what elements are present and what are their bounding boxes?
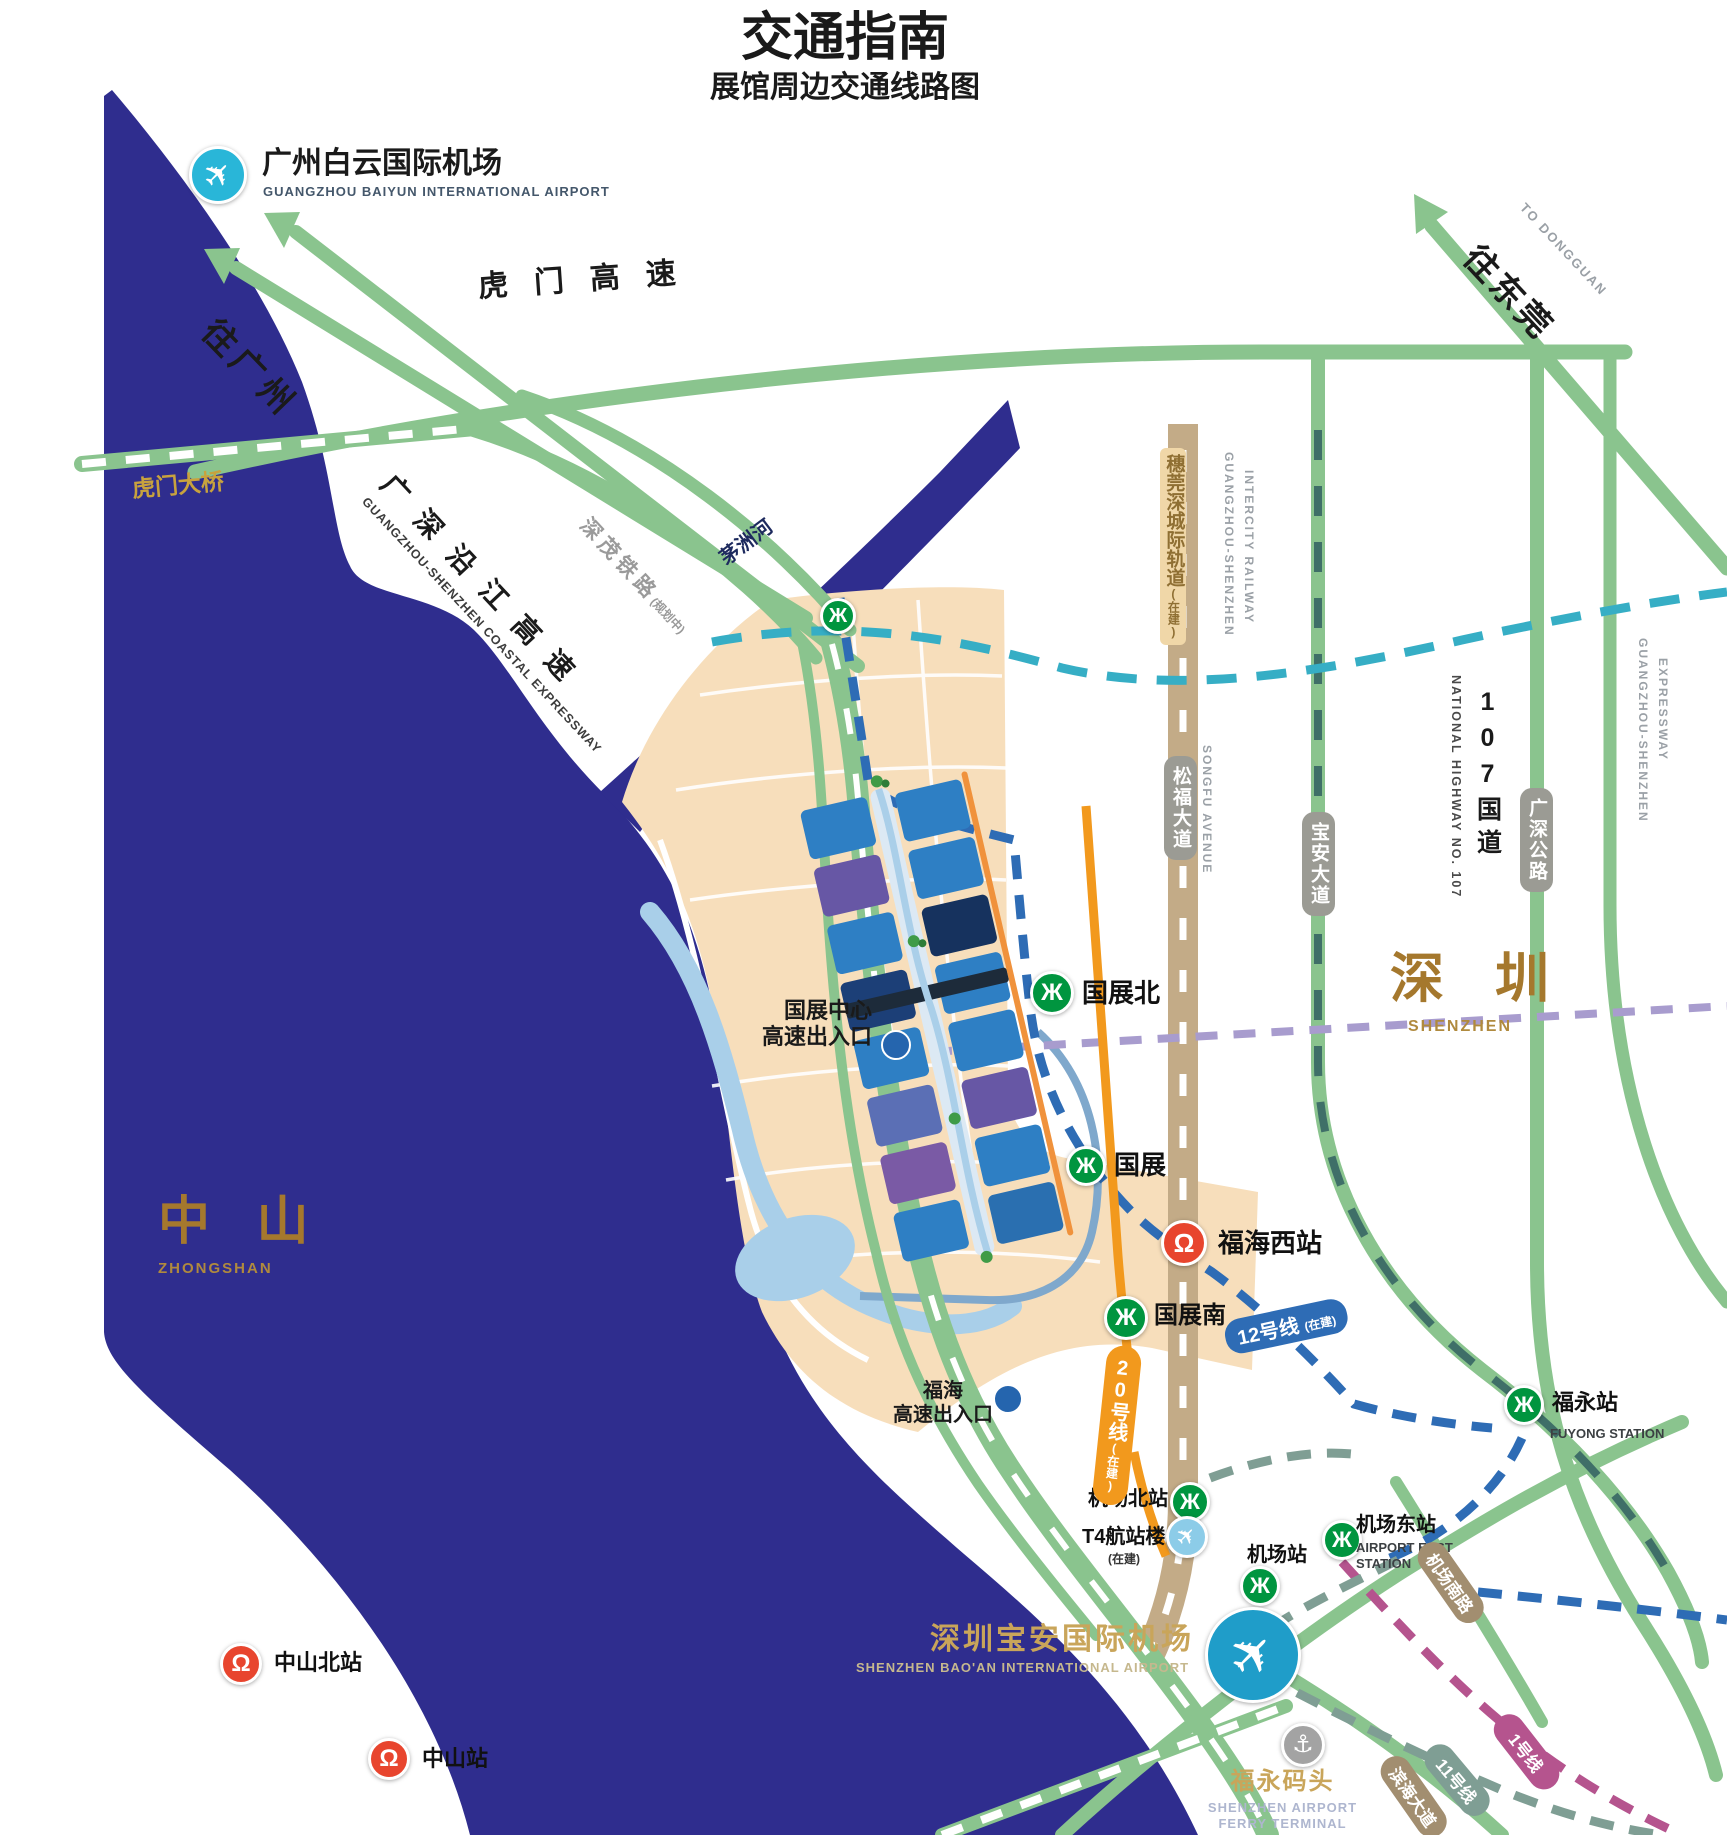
metro-icon-guozhan: Ж: [1066, 1146, 1106, 1186]
metro-icon-airport: Ж: [1240, 1566, 1280, 1606]
page-subtitle: 展馆周边交通线路图: [710, 70, 980, 105]
region-zhongshan-en: ZHONGSHAN: [158, 1260, 273, 1278]
t4-terminal-note: (在建): [1108, 1552, 1140, 1566]
gs-highway-badge: 广深公路: [1520, 788, 1553, 892]
ferry-terminal-label: 福永码头 SHENZHEN AIRPORT FERRY TERMINAL: [1175, 1768, 1390, 1831]
highway-107-en: NATIONAL HIGHWAY NO. 107: [1448, 675, 1463, 898]
station-zhongshan: 中山站: [422, 1746, 488, 1772]
gs-expressway-en1: GUANGZHOU-SHENZHEN: [1636, 638, 1650, 823]
intercity-railway-en1: GUANGZHOU-SHENZHEN: [1222, 452, 1236, 637]
airplane-icon-baoan: ✈: [1205, 1607, 1301, 1703]
songfu-avenue-badge: 松福大道: [1164, 756, 1197, 860]
station-fuyong-en: FUYONG STATION: [1550, 1426, 1664, 1442]
exit-center-label: 国展中心 高速出入口: [700, 998, 872, 1050]
station-airport: 机场站: [1247, 1544, 1307, 1568]
metro-icon-guozhan-south: Ж: [1104, 1296, 1148, 1340]
exit-fuhai-label: 福海 高速出入口: [878, 1380, 1008, 1427]
exit-fuhai-dot: [993, 1384, 1023, 1414]
region-zhongshan: 中 山: [158, 1192, 324, 1253]
baoan-avenue-badge: 宝安大道: [1302, 812, 1335, 916]
intercity-railway-label: 穗莞深城际轨道(在建): [1160, 448, 1186, 645]
railway-icon-fuhai-west: Ω: [1161, 1220, 1207, 1266]
anchor-icon: ⚓: [1281, 1723, 1325, 1767]
page-title: 交通指南: [741, 8, 949, 69]
baiyun-airport-label: 广州白云国际机场: [262, 146, 502, 181]
region-shenzhen: 深 圳: [1390, 948, 1567, 1012]
station-guozhan-south: 国展南: [1154, 1302, 1226, 1330]
region-shenzhen-en: SHENZHEN: [1408, 1018, 1512, 1037]
exit-center-dot: [881, 1030, 911, 1060]
station-fuyong: 福永站: [1552, 1390, 1618, 1416]
baoan-airport-label-en: SHENZHEN BAO'AN INTERNATIONAL AIRPORT: [856, 1660, 1189, 1675]
baoan-airport-label: 深圳宝安国际机场: [930, 1622, 1194, 1657]
station-airport-east: 机场东站: [1356, 1514, 1436, 1538]
t4-terminal-label: T4航站楼: [1082, 1526, 1165, 1550]
traffic-guide-map: 交通指南 展馆周边交通线路图 ✈ 广州白云国际机场 GUANGZHOU BAIY…: [0, 0, 1727, 1835]
station-zhongshan-north: 中山北站: [274, 1650, 362, 1676]
station-fuhai-west: 福海西站: [1218, 1228, 1322, 1259]
station-guozhan-north: 国展北: [1082, 978, 1160, 1009]
metro-icon-guozhan-north: Ж: [1030, 971, 1074, 1015]
baiyun-airport-label-en: GUANGZHOU BAIYUN INTERNATIONAL AIRPORT: [263, 184, 610, 199]
metro-icon: Ж: [820, 598, 856, 634]
airplane-icon-t4: ✈: [1166, 1516, 1208, 1558]
station-guozhan: 国展: [1114, 1150, 1166, 1181]
metro-icon-fuyong: Ж: [1504, 1385, 1544, 1425]
intercity-railway-en2: INTERCITY RAILWAY: [1242, 470, 1256, 624]
highway-107-label: 107国道: [1472, 688, 1502, 862]
railway-icon-zhongshan: Ω: [368, 1738, 410, 1780]
songfu-avenue-en: SONGFU AVENUE: [1200, 745, 1214, 874]
airplane-icon: ✈: [189, 146, 247, 204]
gs-expressway-en2: EXPRESSWAY: [1656, 658, 1670, 761]
railway-icon-zhongshan-north: Ω: [220, 1643, 262, 1685]
arrowheads: [204, 194, 1448, 284]
